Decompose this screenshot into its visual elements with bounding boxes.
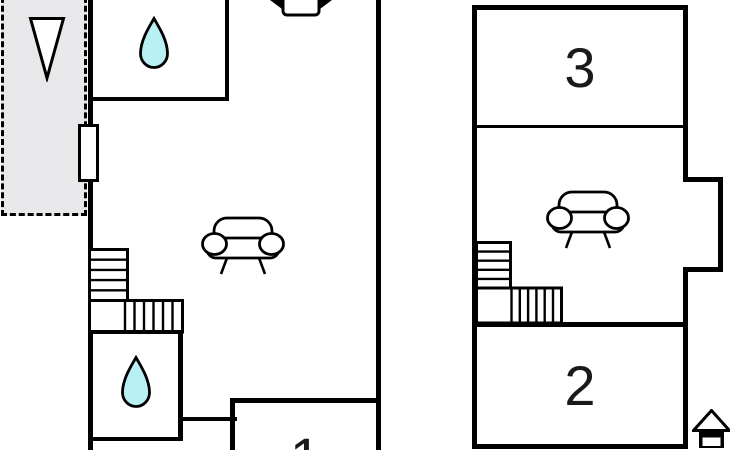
wall-segment <box>88 0 93 450</box>
water-drop-icon <box>119 355 153 409</box>
sofa-icon <box>200 214 286 278</box>
window-marker <box>78 124 99 182</box>
wall-segment <box>718 177 723 272</box>
wall-segment <box>683 267 723 272</box>
wall-segment <box>376 0 381 450</box>
north-triangle-icon <box>28 16 66 82</box>
room-1-label: 1 <box>235 428 376 450</box>
entrance-icon <box>266 0 336 20</box>
wall-segment <box>230 398 381 403</box>
wall-segment <box>88 330 183 334</box>
wall-segment <box>88 437 183 441</box>
room-3-label: 3 <box>477 10 683 125</box>
wall-segment <box>472 444 688 449</box>
wall-segment <box>178 330 183 441</box>
water-drop-icon <box>137 16 171 70</box>
stairs-icon <box>88 246 185 336</box>
wall-segment <box>683 177 723 182</box>
wall-segment <box>180 417 237 421</box>
wall-segment <box>477 125 683 128</box>
stairs-icon <box>472 238 567 328</box>
room-2-label: 2 <box>477 327 683 444</box>
wall-segment <box>683 5 688 182</box>
wall-segment <box>225 0 229 101</box>
wall-segment <box>683 267 688 449</box>
house-icon <box>692 409 730 450</box>
wall-segment <box>88 97 229 101</box>
floor-plan: 1 3 2 <box>0 0 730 450</box>
